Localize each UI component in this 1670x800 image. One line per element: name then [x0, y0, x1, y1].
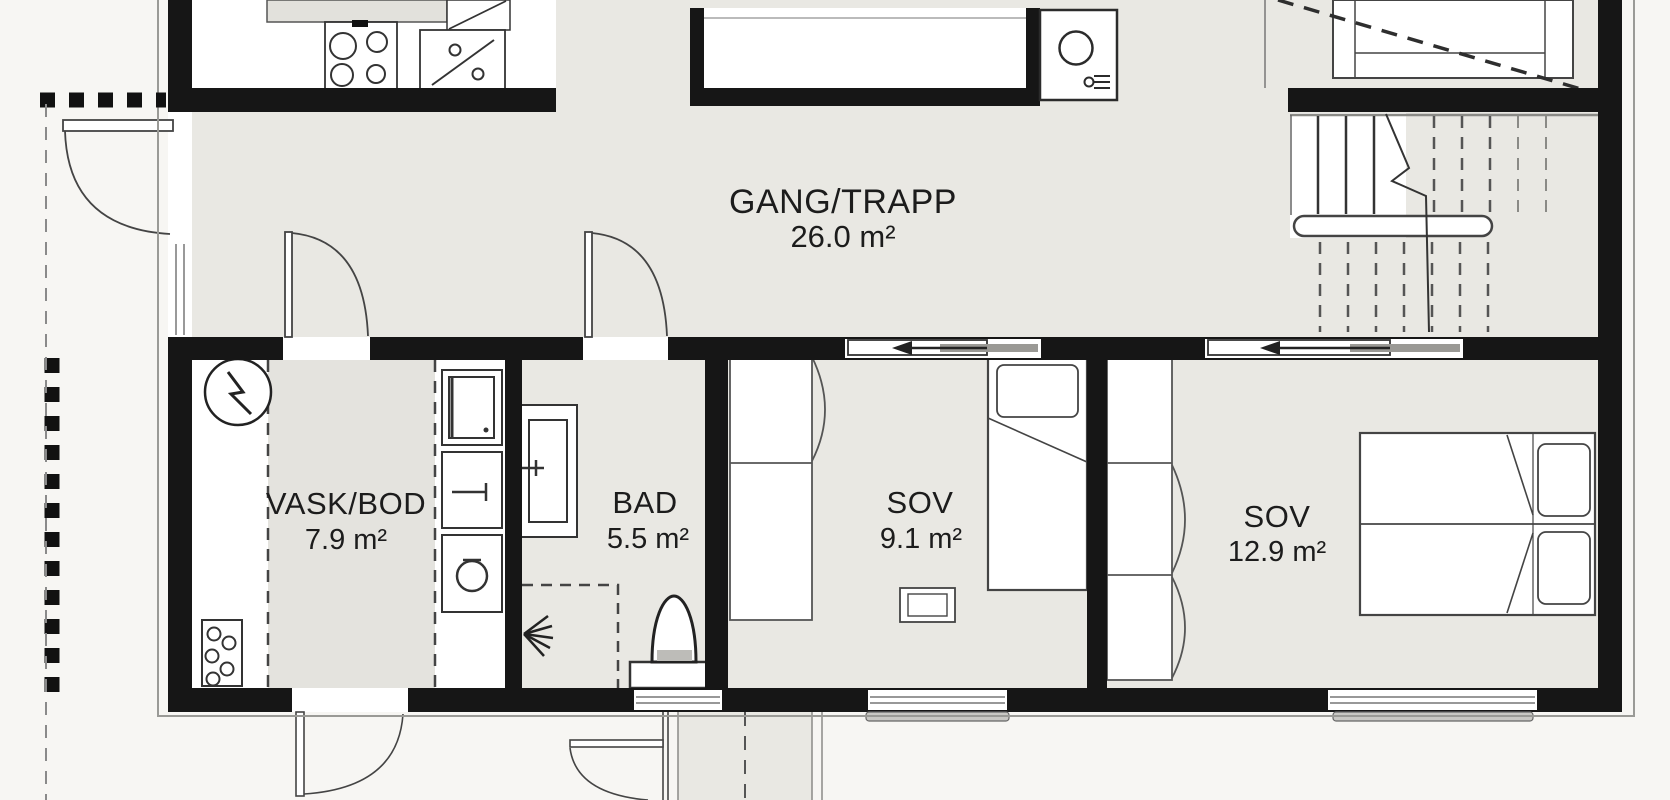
laundry-exterior-door-opening	[292, 688, 408, 712]
electrical-panel-icon	[205, 359, 271, 425]
nightstand	[900, 588, 955, 622]
property-line	[40, 100, 166, 800]
room-label-bedroom-small: SOV	[887, 485, 954, 520]
room-label-bath: BAD	[612, 485, 677, 520]
west-window-opening	[168, 242, 192, 337]
bed-cut	[1333, 0, 1573, 78]
pillow	[1538, 532, 1590, 604]
floor-plan: GANG/TRAPP 26.0 m² VASK/BOD 7.9 m² BAD 5…	[0, 0, 1670, 800]
room-area-laundry: 7.9 m²	[305, 524, 388, 556]
double-bed	[1360, 433, 1595, 615]
room-label-laundry: VASK/BOD	[266, 486, 426, 521]
room-area-bath: 5.5 m²	[607, 523, 690, 555]
cooktop-icon	[325, 20, 397, 92]
room-label-bedroom-large: SOV	[1244, 499, 1311, 534]
laundry-exterior-door	[296, 712, 403, 796]
washing-machine-icon	[442, 535, 502, 612]
single-bed	[988, 358, 1087, 590]
tap-fixture-icon	[442, 452, 502, 528]
pillow	[1538, 444, 1590, 516]
round-basin-icon	[1040, 10, 1117, 100]
staircase	[1290, 113, 1598, 335]
utility-sink-icon	[442, 370, 502, 445]
pillow	[997, 365, 1078, 417]
vanity-sink-icon	[518, 405, 577, 537]
kitchen-island	[690, 8, 1117, 106]
room-area-hall: 26.0 m²	[790, 219, 895, 254]
floor-plan-canvas: GANG/TRAPP 26.0 m² VASK/BOD 7.9 m² BAD 5…	[0, 0, 1670, 800]
room-area-bedroom-large: 12.9 m²	[1228, 536, 1327, 568]
floor-drain-icon	[202, 620, 242, 686]
lower-exterior-door	[570, 712, 668, 800]
bath-window-opening	[634, 690, 722, 710]
bedroom-small-window-opening	[868, 690, 1007, 710]
bedroom-large-window-opening	[1328, 690, 1537, 710]
room-area-bedroom-small: 9.1 m²	[880, 523, 963, 555]
counter	[267, 0, 447, 22]
room-label-hall: GANG/TRAPP	[729, 183, 957, 221]
wardrobe	[730, 355, 825, 620]
entry-door	[63, 120, 173, 234]
